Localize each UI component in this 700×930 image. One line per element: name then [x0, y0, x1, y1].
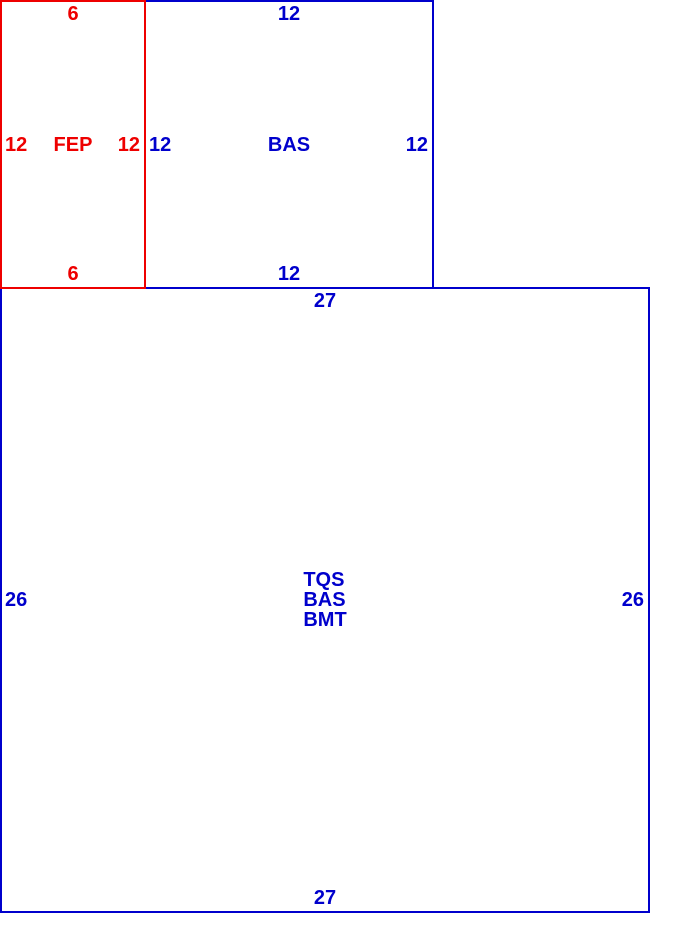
- bas-dim-left: 12: [149, 135, 171, 155]
- area-tqs-bas-bmt: 27 26 26 27 TQS BAS BMT: [0, 287, 650, 913]
- area-label-bas: BAS: [268, 135, 310, 155]
- area-label-line-2: BAS: [303, 590, 346, 610]
- bas-dim-bottom: 12: [278, 264, 300, 284]
- area-fep: 6 12 12 6 FEP: [0, 0, 146, 289]
- tqs-dim-right: 26: [622, 590, 644, 610]
- sketch-canvas: 27 26 26 27 TQS BAS BMT 12 12 12 12 BAS …: [0, 0, 700, 930]
- area-label-line-3: BMT: [303, 610, 346, 630]
- area-label-line-1: TQS: [303, 570, 346, 590]
- bas-dim-right: 12: [406, 135, 428, 155]
- fep-dim-top: 6: [67, 4, 78, 24]
- tqs-dim-bottom: 27: [314, 888, 336, 908]
- bas-dim-top: 12: [278, 4, 300, 24]
- area-label-fep: FEP: [54, 135, 93, 155]
- fep-dim-left: 12: [5, 135, 27, 155]
- tqs-dim-top: 27: [314, 291, 336, 311]
- area-bas: 12 12 12 12 BAS: [144, 0, 434, 289]
- fep-dim-bottom: 6: [67, 264, 78, 284]
- fep-dim-right: 12: [118, 135, 140, 155]
- tqs-dim-left: 26: [5, 590, 27, 610]
- area-label-tqs-bas-bmt: TQS BAS BMT: [303, 570, 346, 630]
